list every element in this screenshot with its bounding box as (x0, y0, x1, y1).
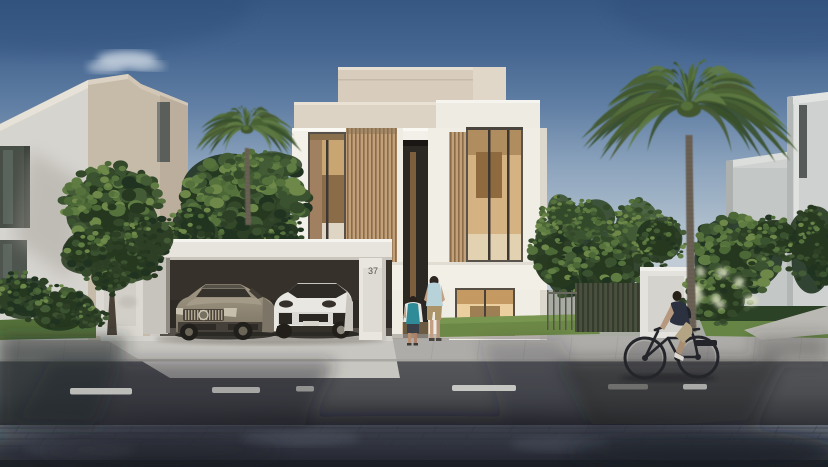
svg-text:37: 37 (368, 266, 378, 276)
